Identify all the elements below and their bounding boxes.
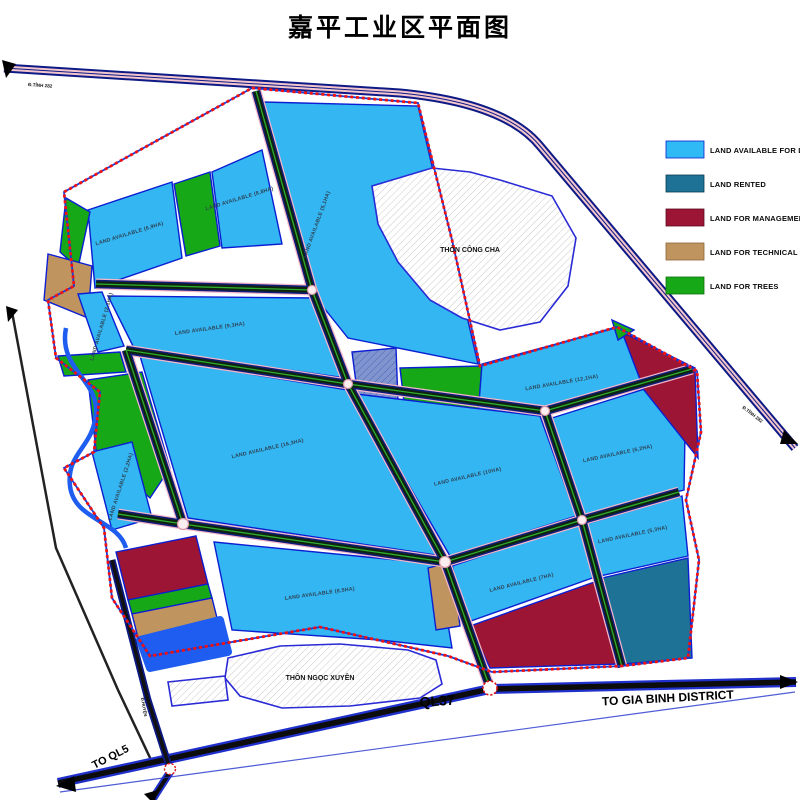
legend-item-rented: LAND RENTED xyxy=(666,175,766,192)
legend-swatch-rented xyxy=(666,175,704,192)
main-gate-roundabout xyxy=(483,681,497,695)
ql37-label: QL37 xyxy=(419,692,455,710)
legend-label-rented: LAND RENTED xyxy=(710,180,766,189)
village-northeast-label: THÔN CÔNG CHA xyxy=(440,245,500,254)
legend-item-trees: LAND FOR TREES xyxy=(666,277,779,294)
legend-label-available: LAND AVAILABLE FOR LEASE xyxy=(710,146,800,155)
industrial-zone-plan-page: 嘉平工业区平面图 xyxy=(0,0,800,800)
arrow-west-road xyxy=(6,306,18,322)
legend-item-management: LAND FOR MANAGEMENT xyxy=(666,209,800,226)
legend: LAND AVAILABLE FOR LEASE LAND RENTED LAN… xyxy=(666,141,800,294)
legend-label-trees: LAND FOR TREES xyxy=(710,282,779,291)
legend-label-technical: LAND FOR TECHNICAL xyxy=(710,248,798,257)
legend-label-management: LAND FOR MANAGEMENT xyxy=(710,214,800,223)
legend-item-available: LAND AVAILABLE FOR LEASE xyxy=(666,141,800,158)
village-south-label: THÔN NGỌC XUYÊN xyxy=(286,673,355,682)
legend-swatch-available xyxy=(666,141,704,158)
west-roundabout xyxy=(165,764,176,775)
legend-swatch-technical xyxy=(666,243,704,260)
legend-swatch-management xyxy=(666,209,704,226)
provincial-road-label-west: Đ.TỈNH 282 xyxy=(28,81,53,89)
village-south-annex xyxy=(168,676,228,706)
legend-item-technical: LAND FOR TECHNICAL xyxy=(666,243,798,260)
zone-plan-map: LAND AVAILABLE (6,9HA) LAND AVAILABLE (8… xyxy=(0,0,800,800)
legend-swatch-trees xyxy=(666,277,704,294)
